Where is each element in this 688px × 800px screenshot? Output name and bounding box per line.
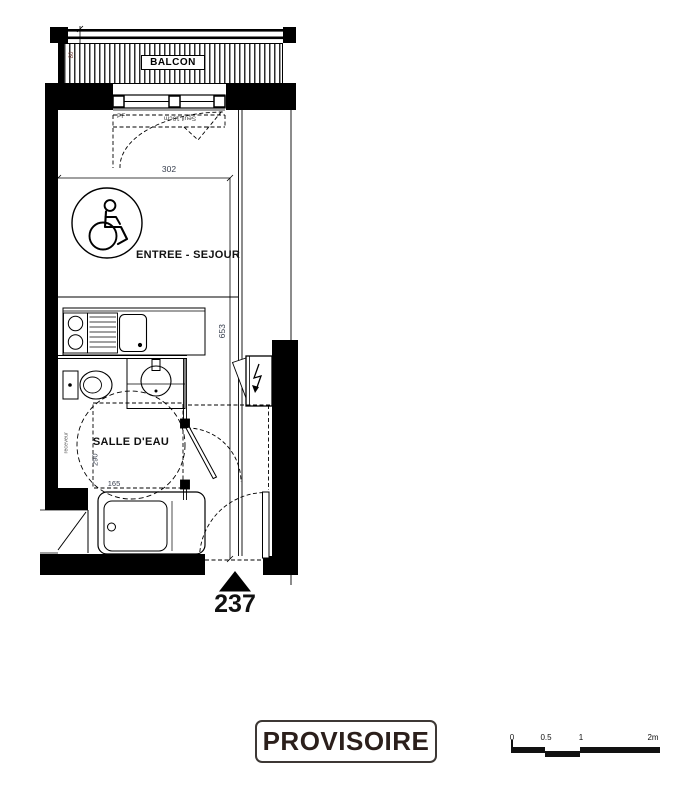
- provisoire-stamp: PROVISOIRE: [255, 720, 437, 763]
- kitchen-sink: [120, 315, 147, 352]
- floor-plan-page: BALCON 80 PF Seuil 10cm 302 ENTREE - SEJ…: [0, 0, 688, 800]
- threshold-note-label: Seuil 10cm: [146, 114, 214, 121]
- wall-note-label: receveur: [64, 422, 70, 464]
- room-length-dimension: 653: [218, 316, 227, 346]
- entrance-triangle-marker: [219, 571, 251, 592]
- washbasin: [127, 359, 185, 409]
- balcony-depth-dimension: 80: [69, 45, 75, 65]
- kitchen-counter: [63, 308, 205, 355]
- entrance-door-leaf: [263, 492, 270, 558]
- wheelchair-icon: [72, 188, 142, 258]
- scale-bar-segment: [580, 747, 660, 753]
- bathroom-label: SALLE D'EAU: [85, 437, 177, 448]
- bathroom-door-leaf: [186, 427, 217, 479]
- wall-recess: [40, 510, 88, 553]
- toilet: [63, 371, 112, 399]
- scale-bar-segment: [512, 747, 545, 753]
- entrance-door-swing: [200, 493, 266, 559]
- scale-bar-segment: [545, 751, 580, 757]
- window-code-label: PF: [117, 114, 125, 121]
- scale-label-05: 0.5: [536, 733, 556, 742]
- hob: [64, 313, 88, 353]
- floor-plan-drawing: [0, 0, 688, 800]
- scale-label-0: 0: [505, 733, 519, 742]
- bathroom-width-dimension: 165: [100, 480, 128, 488]
- exterior-walls: [40, 83, 298, 575]
- scale-label-1: 1: [574, 733, 588, 742]
- bathroom-length-dimension: 290: [91, 446, 99, 474]
- entry-living-label: ENTREE - SEJOUR: [136, 250, 240, 261]
- scale-label-2m: 2m: [641, 733, 665, 742]
- balcony-window: [113, 95, 225, 110]
- balcony-label: BALCON: [141, 55, 205, 70]
- room-width-dimension: 302: [150, 165, 188, 174]
- shower-tray: [98, 492, 205, 554]
- unit-number: 237: [199, 592, 271, 617]
